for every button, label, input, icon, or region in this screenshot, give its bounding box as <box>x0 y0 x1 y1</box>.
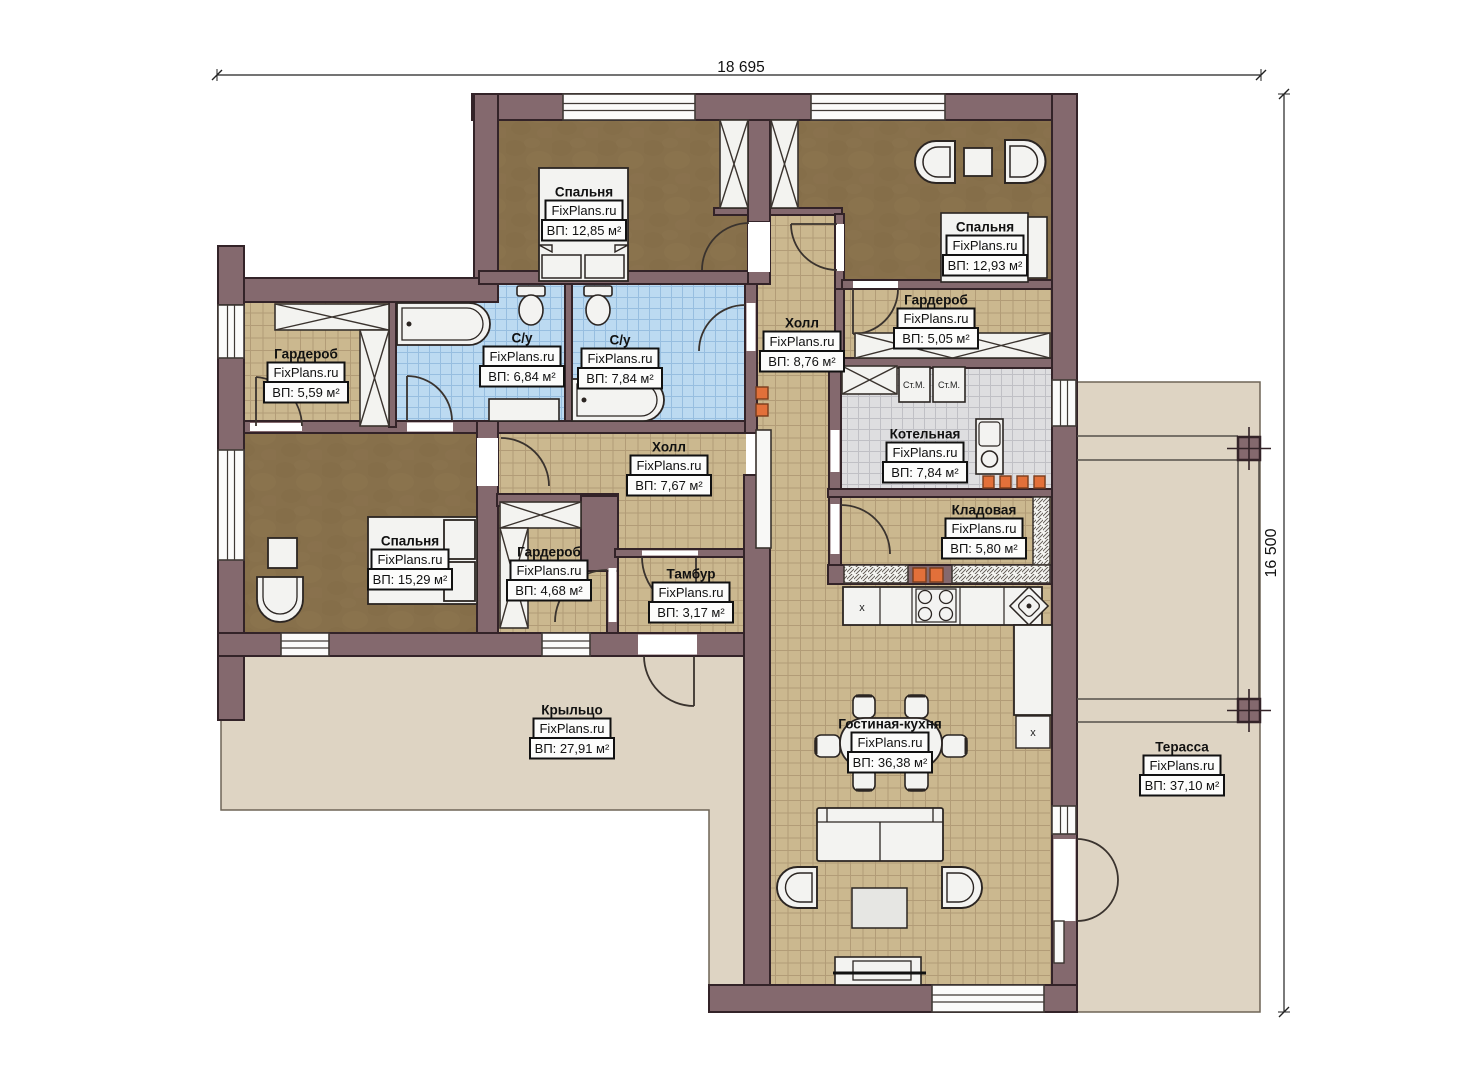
svg-text:ВП: 5,05 м²: ВП: 5,05 м² <box>902 331 970 346</box>
svg-text:FixPlans.ru: FixPlans.ru <box>1149 758 1214 773</box>
svg-text:Крыльцо: Крыльцо <box>541 703 602 718</box>
svg-text:FixPlans.ru: FixPlans.ru <box>903 311 968 326</box>
svg-text:ВП: 6,84 м²: ВП: 6,84 м² <box>488 369 556 384</box>
svg-text:Гостиная-кухня: Гостиная-кухня <box>838 717 941 732</box>
svg-text:FixPlans.ru: FixPlans.ru <box>377 552 442 567</box>
svg-text:FixPlans.ru: FixPlans.ru <box>769 334 834 349</box>
svg-text:Ст.М.: Ст.М. <box>938 380 960 390</box>
svg-text:x: x <box>1030 727 1036 739</box>
svg-text:FixPlans.ru: FixPlans.ru <box>636 458 701 473</box>
svg-text:ВП: 15,29 м²: ВП: 15,29 м² <box>373 572 448 587</box>
svg-text:ВП: 7,84 м²: ВП: 7,84 м² <box>586 371 654 386</box>
svg-text:ВП: 12,85 м²: ВП: 12,85 м² <box>547 223 622 238</box>
svg-text:FixPlans.ru: FixPlans.ru <box>857 735 922 750</box>
svg-text:ВП: 12,93 м²: ВП: 12,93 м² <box>948 258 1023 273</box>
svg-text:Гардероб: Гардероб <box>274 347 338 362</box>
svg-text:Кладовая: Кладовая <box>952 503 1017 518</box>
svg-text:FixPlans.ru: FixPlans.ru <box>489 349 554 364</box>
svg-text:Спальня: Спальня <box>381 534 439 549</box>
svg-text:FixPlans.ru: FixPlans.ru <box>658 585 723 600</box>
svg-text:Спальня: Спальня <box>555 185 613 200</box>
svg-text:ВП: 7,84 м²: ВП: 7,84 м² <box>891 465 959 480</box>
svg-text:Ст.М.: Ст.М. <box>903 380 925 390</box>
svg-text:С/у: С/у <box>511 331 533 346</box>
svg-text:x: x <box>859 602 865 614</box>
svg-text:Гардероб: Гардероб <box>517 545 581 560</box>
svg-text:FixPlans.ru: FixPlans.ru <box>892 445 957 460</box>
svg-text:ВП: 27,91 м²: ВП: 27,91 м² <box>535 741 610 756</box>
svg-text:ВП: 4,68 м²: ВП: 4,68 м² <box>515 583 583 598</box>
svg-text:ВП: 7,67 м²: ВП: 7,67 м² <box>635 478 703 493</box>
svg-text:FixPlans.ru: FixPlans.ru <box>273 365 338 380</box>
svg-text:16 500: 16 500 <box>1263 528 1280 577</box>
svg-text:ВП: 5,80 м²: ВП: 5,80 м² <box>950 541 1018 556</box>
svg-text:Гардероб: Гардероб <box>904 293 968 308</box>
svg-text:FixPlans.ru: FixPlans.ru <box>551 203 616 218</box>
svg-text:ВП: 36,38 м²: ВП: 36,38 м² <box>853 755 928 770</box>
svg-text:Котельная: Котельная <box>890 427 961 442</box>
svg-text:Холл: Холл <box>652 440 686 455</box>
svg-text:С/у: С/у <box>609 333 631 348</box>
svg-text:ВП: 5,59 м²: ВП: 5,59 м² <box>272 385 340 400</box>
svg-text:Холл: Холл <box>785 316 819 331</box>
svg-text:Тамбур: Тамбур <box>667 567 716 582</box>
svg-text:FixPlans.ru: FixPlans.ru <box>516 563 581 578</box>
svg-text:Терасса: Терасса <box>1155 740 1209 755</box>
svg-text:FixPlans.ru: FixPlans.ru <box>951 521 1016 536</box>
svg-text:FixPlans.ru: FixPlans.ru <box>587 351 652 366</box>
svg-text:ВП: 8,76 м²: ВП: 8,76 м² <box>768 354 836 369</box>
svg-text:FixPlans.ru: FixPlans.ru <box>539 721 604 736</box>
svg-text:FixPlans.ru: FixPlans.ru <box>952 238 1017 253</box>
svg-text:ВП: 37,10 м²: ВП: 37,10 м² <box>1145 778 1220 793</box>
svg-text:ВП: 3,17 м²: ВП: 3,17 м² <box>657 605 725 620</box>
svg-text:Спальня: Спальня <box>956 220 1014 235</box>
svg-text:18 695: 18 695 <box>717 59 764 76</box>
